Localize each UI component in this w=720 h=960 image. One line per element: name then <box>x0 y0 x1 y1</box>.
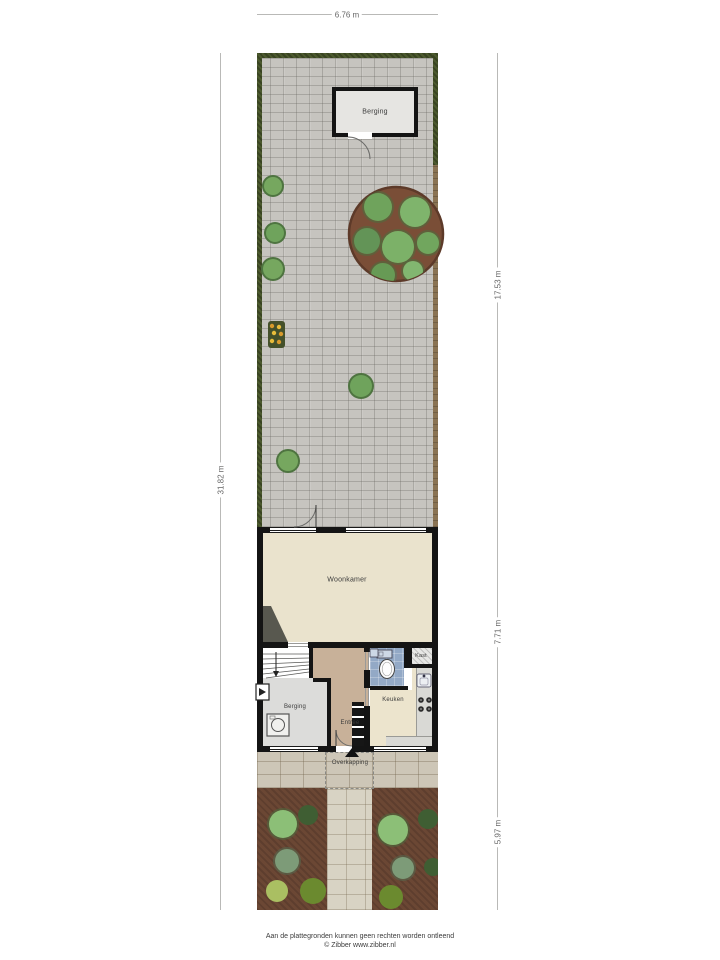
wall-storage-hall <box>327 682 331 746</box>
footer-disclaimer: Aan de plattegronden kunnen geen rechten… <box>0 932 720 950</box>
shed-door-opening <box>348 132 372 139</box>
footer-line1: Aan de plattegronden kunnen geen rechten… <box>0 932 720 941</box>
hedge-top-border <box>257 53 438 58</box>
hedge-left-border <box>257 53 262 527</box>
hedge-right-border-top <box>433 53 438 165</box>
storage-room-floor <box>263 678 331 746</box>
dim-label-back-garden: 17.53 m <box>494 268 503 303</box>
living-door-opening <box>288 642 308 648</box>
toilet-floor <box>370 648 404 686</box>
window-rear-left <box>270 527 316 533</box>
wall-right-exterior <box>432 527 438 752</box>
wall-left-exterior <box>257 527 263 752</box>
kitchen-label: Keuken <box>382 697 404 703</box>
window-rear-right <box>346 527 426 533</box>
wall-toilet-south <box>370 686 408 690</box>
entrance-arrow-icon <box>345 748 359 757</box>
dim-label-total-width: 6.76 m <box>332 11 362 20</box>
fence-right-border <box>433 165 438 527</box>
front-bed-left <box>257 788 327 910</box>
wall-top-corner-right <box>426 527 438 533</box>
dim-label-total-height: 31.82 m <box>217 463 226 498</box>
living-room-floor <box>263 533 432 642</box>
dim-label-front-garden: 5.97 m <box>494 817 503 847</box>
canopy-label: Overkapping <box>332 760 368 766</box>
closet-label: Kast <box>415 653 427 659</box>
footer-line2: © Zibber www.zibber.nl <box>0 941 720 950</box>
front-bed-right <box>372 788 438 910</box>
storage-label: Berging <box>284 704 306 710</box>
living-room-label: Woonkamer <box>327 577 366 584</box>
wall-top-corner-left <box>257 527 270 533</box>
floorplan-scene: Berging Woonkamer Kast Keuken Berging En… <box>0 0 720 960</box>
entrance-label: Entree <box>341 720 360 726</box>
front-garden-path <box>327 788 372 910</box>
dim-label-house: 7.71 m <box>494 617 503 647</box>
stairs-floor <box>263 648 313 678</box>
wall-hall-kitchen-c <box>364 706 370 746</box>
wall-closet-south <box>404 664 432 668</box>
wall-stairs-right <box>309 648 313 678</box>
wall-top-pier <box>316 527 346 533</box>
kitchen-counter-right <box>416 668 433 746</box>
wall-hall-kitchen-a <box>364 648 370 652</box>
shed-label: Berging <box>362 109 388 116</box>
canopy-outline <box>325 752 374 789</box>
